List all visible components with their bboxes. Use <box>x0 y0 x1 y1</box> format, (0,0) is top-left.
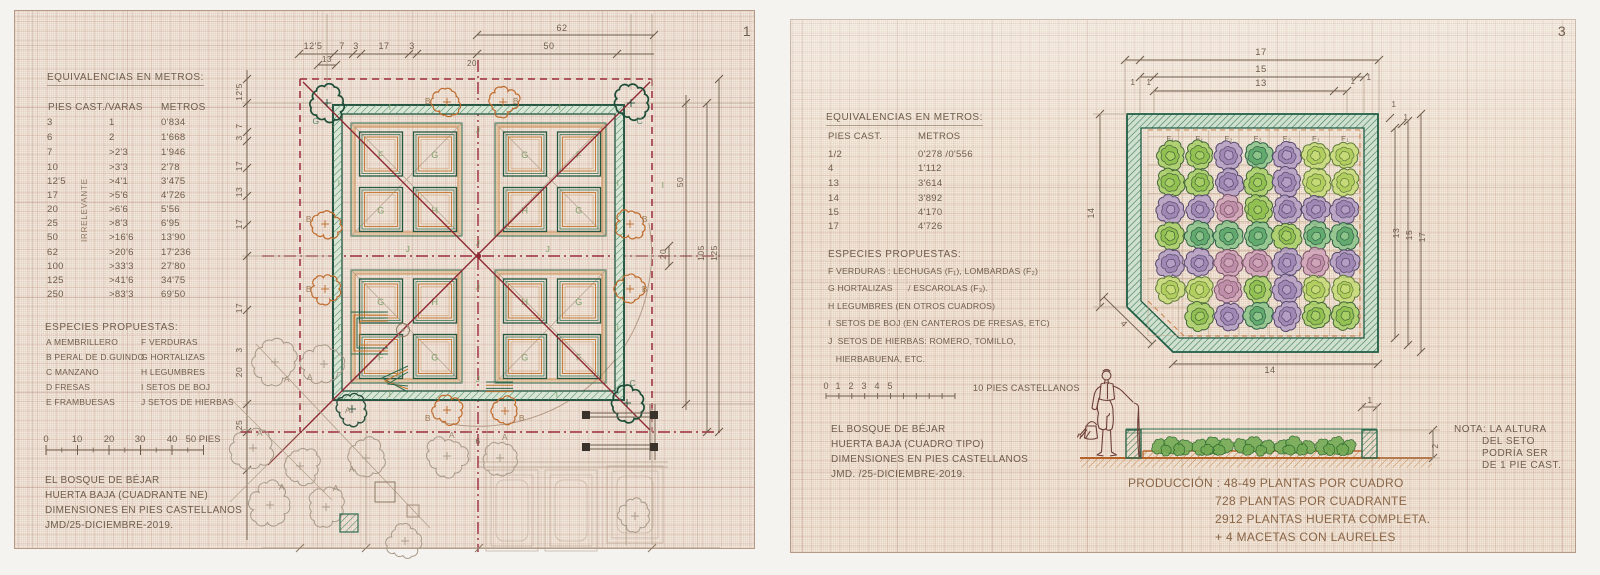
svg-text:12'5: 12'5 <box>304 41 323 51</box>
svg-text:17: 17 <box>1417 232 1427 242</box>
svg-text:17: 17 <box>378 41 389 51</box>
svg-text:13: 13 <box>1255 78 1267 89</box>
svg-text:1: 1 <box>1351 77 1356 86</box>
svg-text:14: 14 <box>1264 365 1275 375</box>
svg-text:50: 50 <box>543 41 554 51</box>
svg-text:J: J <box>476 374 481 384</box>
svg-text:J: J <box>476 125 481 135</box>
svg-text:B: B <box>519 413 525 423</box>
svg-text:1: 1 <box>1367 73 1372 82</box>
svg-text:I: I <box>338 322 341 332</box>
svg-text:C: C <box>637 116 644 126</box>
svg-text:A: A <box>502 432 508 442</box>
svg-text:4: 4 <box>1119 318 1130 329</box>
svg-text:B: B <box>513 96 519 106</box>
svg-text:1: 1 <box>743 23 751 39</box>
svg-text:3: 3 <box>1558 23 1566 39</box>
svg-text:G: G <box>377 297 385 307</box>
svg-text:7: 7 <box>339 41 345 51</box>
svg-text:2: 2 <box>1430 443 1440 448</box>
svg-text:B: B <box>425 413 431 423</box>
svg-text:G: G <box>431 150 439 160</box>
svg-text:C: C <box>630 378 637 388</box>
svg-text:G: G <box>521 353 529 363</box>
svg-text:1: 1 <box>1392 100 1397 109</box>
svg-text:J: J <box>546 244 551 254</box>
svg-text:J: J <box>476 238 481 248</box>
svg-text:I: I <box>662 180 665 190</box>
svg-text:B: B <box>642 284 648 294</box>
svg-text:I: I <box>389 102 392 112</box>
svg-text:1: 1 <box>1147 78 1152 87</box>
svg-text:I: I <box>559 102 562 112</box>
svg-text:105: 105 <box>696 245 706 261</box>
svg-text:J: J <box>406 244 411 254</box>
svg-text:1: 1 <box>1367 395 1372 405</box>
svg-text:20: 20 <box>467 59 477 68</box>
svg-text:B: B <box>642 214 648 224</box>
svg-text:I: I <box>617 178 620 188</box>
svg-text:15: 15 <box>1404 230 1414 240</box>
svg-text:G: G <box>431 353 439 363</box>
svg-text:13: 13 <box>322 55 332 64</box>
svg-text:125: 125 <box>709 245 719 261</box>
svg-text:A: A <box>345 405 351 415</box>
svg-text:A: A <box>333 483 339 493</box>
svg-text:15: 15 <box>1255 64 1267 75</box>
svg-text:B: B <box>306 214 312 224</box>
svg-text:3: 3 <box>409 41 415 51</box>
svg-text:I: I <box>556 389 559 399</box>
svg-text:I: I <box>617 322 620 332</box>
svg-text:A: A <box>307 372 313 382</box>
svg-text:12'5: 12'5 <box>234 83 244 101</box>
svg-text:F₁: F₁ <box>1341 134 1349 143</box>
svg-text:17: 17 <box>1255 47 1267 58</box>
svg-text:6: 6 <box>476 437 481 446</box>
svg-text:I: I <box>338 178 341 188</box>
svg-text:G: G <box>312 116 319 126</box>
svg-text:G: G <box>575 206 583 216</box>
svg-text:J: J <box>476 282 481 292</box>
svg-text:G: G <box>377 206 385 216</box>
svg-text:B: B <box>425 96 431 106</box>
svg-text:B: B <box>306 284 312 294</box>
svg-text:G: G <box>521 150 529 160</box>
svg-text:I: I <box>389 389 392 399</box>
svg-text:A: A <box>257 428 263 438</box>
svg-text:F₁: F₁ <box>1312 134 1320 143</box>
svg-text:1: 1 <box>1404 113 1409 122</box>
svg-text:25: 25 <box>234 420 244 430</box>
svg-text:G: G <box>575 297 583 307</box>
svg-text:50: 50 <box>675 177 685 187</box>
svg-text:13: 13 <box>1391 228 1401 238</box>
svg-text:3: 3 <box>353 41 359 51</box>
svg-text:A: A <box>349 464 355 474</box>
svg-text:A: A <box>449 430 455 440</box>
svg-text:14: 14 <box>1086 207 1096 218</box>
svg-text:20: 20 <box>658 249 668 259</box>
svg-text:1: 1 <box>1131 78 1136 87</box>
svg-text:62: 62 <box>556 23 567 33</box>
